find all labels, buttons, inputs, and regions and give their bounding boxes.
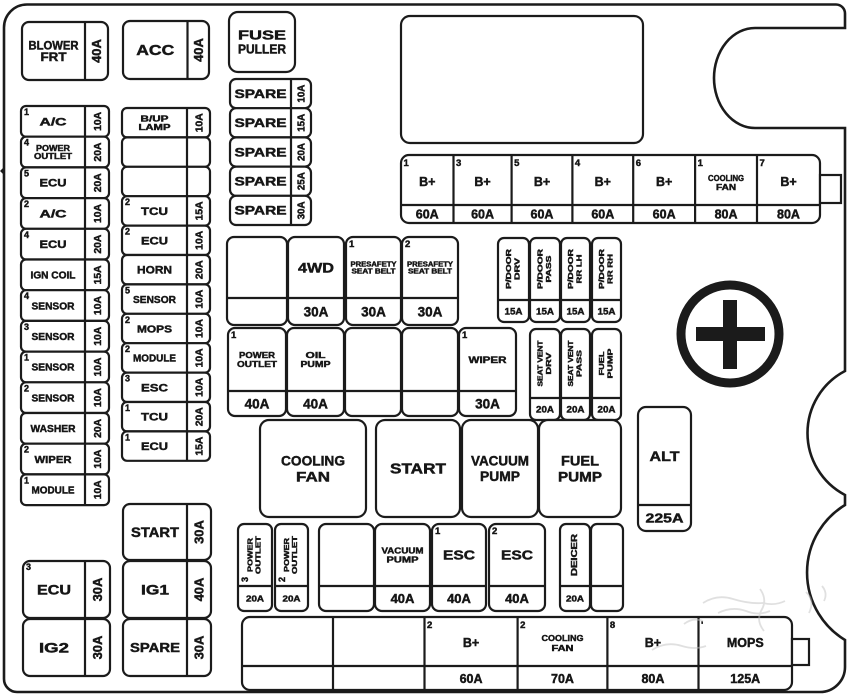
svg-text:OUTLET: OUTLET [237,359,278,369]
svg-text:PASS: PASS [544,256,553,283]
svg-text:15A: 15A [297,114,308,132]
svg-text:ACC: ACC [136,43,175,59]
svg-text:ECU: ECU [40,178,67,190]
svg-text:10A: 10A [193,113,205,132]
svg-text:10A: 10A [193,289,205,308]
svg-text:MOPS: MOPS [727,636,764,650]
svg-text:SENSOR: SENSOR [32,300,75,312]
svg-text:3: 3 [456,158,461,169]
svg-text:10A: 10A [297,85,308,103]
svg-text:SENSOR: SENSOR [32,392,75,404]
svg-text:3: 3 [125,374,130,384]
svg-text:PULLER: PULLER [238,43,286,57]
svg-text:60A: 60A [471,208,494,222]
svg-text:POWER: POWER [248,538,255,572]
svg-text:30A: 30A [475,396,500,411]
svg-text:10A: 10A [92,449,104,468]
svg-text:DRV: DRV [544,353,553,375]
svg-text:15A: 15A [505,306,523,317]
svg-text:1: 1 [24,475,29,485]
svg-text:5: 5 [514,158,520,169]
svg-text:DEICER: DEICER [570,534,579,576]
svg-text:START: START [390,462,446,478]
svg-text:20A: 20A [92,173,104,192]
svg-text:2: 2 [277,577,287,582]
svg-text:TCU: TCU [141,412,168,424]
svg-text:30A: 30A [192,519,207,543]
svg-text:4: 4 [24,291,29,301]
svg-text:20A: 20A [567,404,585,415]
svg-text:80A: 80A [715,208,738,222]
svg-text:DRV: DRV [512,258,521,280]
svg-text:30A: 30A [90,577,105,601]
svg-text:2: 2 [427,620,432,631]
svg-text:ESC: ESC [443,548,476,563]
svg-text:40A: 40A [505,591,529,606]
svg-text:1: 1 [231,330,237,341]
svg-text:FRT: FRT [41,52,67,64]
svg-text:': ' [701,620,703,631]
svg-text:B+: B+ [595,175,611,189]
svg-text:20A: 20A [92,234,104,253]
svg-text:3: 3 [26,562,31,572]
svg-text:RR LH: RR LH [574,255,583,284]
svg-text:SPARE: SPARE [235,116,287,130]
svg-text:2: 2 [24,199,29,209]
svg-text:60A: 60A [531,208,554,222]
svg-text:ECU: ECU [37,582,71,597]
svg-text:VACUUM: VACUUM [471,454,529,469]
svg-text:20A: 20A [246,594,264,604]
svg-text:ECU: ECU [141,441,168,453]
svg-text:A/C: A/C [40,116,67,128]
svg-text:4: 4 [575,158,581,169]
svg-text:B+: B+ [656,175,672,189]
svg-text:2: 2 [24,445,29,455]
svg-text:IGN COIL: IGN COIL [31,270,77,282]
svg-text:10A: 10A [193,377,205,396]
svg-text:ALT: ALT [650,449,681,464]
svg-text:2: 2 [492,526,497,537]
svg-text:30A: 30A [418,304,443,319]
svg-text:40A: 40A [192,577,207,601]
svg-text:1: 1 [435,526,441,537]
svg-text:15A: 15A [193,436,205,455]
svg-text:PUMP: PUMP [387,555,419,565]
svg-text:ESC: ESC [501,548,534,563]
svg-text:FUEL: FUEL [561,452,599,468]
svg-text:20A: 20A [193,407,205,426]
svg-text:15A: 15A [536,306,554,317]
svg-text:PUMP: PUMP [480,469,520,484]
svg-text:START: START [131,525,180,540]
svg-text:3: 3 [240,577,250,582]
svg-text:40A: 40A [245,396,270,411]
svg-text:SEAT BELT: SEAT BELT [408,269,453,276]
svg-text:80A: 80A [777,208,800,222]
svg-text:20A: 20A [92,418,104,437]
svg-text:SEAT BELT: SEAT BELT [352,269,397,276]
svg-text:60A: 60A [653,208,676,222]
svg-text:20A: 20A [536,404,554,415]
svg-text:3: 3 [24,322,29,332]
svg-text:PASS: PASS [574,350,583,377]
svg-text:20A: 20A [92,142,104,161]
svg-text:FAN: FAN [296,469,330,485]
svg-text:20A: 20A [566,594,584,604]
svg-text:25A: 25A [297,172,308,190]
svg-text:ESC: ESC [141,382,168,394]
svg-text:WIPER: WIPER [469,355,507,366]
svg-text:30A: 30A [297,201,308,219]
svg-text:5: 5 [125,285,130,295]
svg-text:PUMP: PUMP [605,349,614,379]
svg-text:WASHER: WASHER [31,423,76,435]
svg-text:OUTLET: OUTLET [255,535,262,574]
svg-text:OUTLET: OUTLET [292,535,299,574]
svg-text:PRESAFETY: PRESAFETY [407,261,453,268]
svg-text:40A: 40A [303,396,328,411]
svg-text:4WD: 4WD [298,260,334,276]
svg-text:COOLING: COOLING [542,633,584,643]
svg-text:2: 2 [125,197,130,207]
svg-text:1: 1 [125,403,130,413]
svg-text:1: 1 [404,158,410,169]
svg-text:SENSOR: SENSOR [133,294,176,306]
svg-text:IG2: IG2 [39,640,69,655]
svg-text:1: 1 [462,330,468,341]
svg-text:4: 4 [24,230,29,240]
svg-text:COOLING: COOLING [281,452,345,468]
svg-text:1: 1 [125,432,130,442]
svg-text:2: 2 [125,227,130,237]
svg-text:125A: 125A [730,672,760,686]
svg-text:10A: 10A [92,388,104,407]
svg-text:1: 1 [349,239,355,250]
svg-text:POWER: POWER [284,538,291,572]
svg-text:FAN: FAN [552,643,574,653]
svg-text:SPARE: SPARE [130,640,180,655]
svg-text:70A: 70A [551,672,574,686]
svg-text:10A: 10A [193,230,205,249]
svg-text:ECU: ECU [40,239,67,251]
svg-text:2: 2 [405,239,410,250]
svg-text:RR RH: RR RH [605,254,614,284]
svg-text:WIPER: WIPER [35,454,72,466]
svg-text:IG1: IG1 [141,582,170,597]
svg-text:B+: B+ [419,175,435,189]
svg-text:20A: 20A [193,260,205,279]
svg-text:4: 4 [24,138,29,148]
svg-text:B+: B+ [534,175,550,189]
svg-text:ECU: ECU [141,235,168,247]
svg-text:1: 1 [24,107,29,117]
svg-text:2: 2 [520,620,525,631]
svg-text:30A: 30A [90,635,105,659]
svg-text:60A: 60A [416,208,439,222]
svg-text:5: 5 [24,168,29,178]
svg-text:PRESAFETY: PRESAFETY [351,261,397,268]
svg-text:FAN: FAN [716,183,736,192]
svg-text:10A: 10A [92,111,104,130]
svg-text:10A: 10A [92,357,104,376]
svg-text:SENSOR: SENSOR [32,362,75,374]
svg-text:30A: 30A [304,304,329,319]
svg-text:6: 6 [636,158,641,169]
svg-text:10A: 10A [92,326,104,345]
svg-text:10A: 10A [92,204,104,223]
svg-text:MOPS: MOPS [137,323,172,335]
svg-text:225A: 225A [646,511,685,526]
svg-text:60A: 60A [460,672,483,686]
svg-text:COOLING: COOLING [708,174,744,183]
svg-text:A/C: A/C [40,208,67,220]
svg-text:MODULE: MODULE [32,485,75,497]
svg-text:FUSE: FUSE [238,28,286,42]
svg-text:LAMP: LAMP [139,122,171,132]
svg-text:SENSOR: SENSOR [32,331,75,343]
svg-text:15A: 15A [92,265,104,284]
svg-text:SPARE: SPARE [235,175,287,189]
svg-text:40A: 40A [89,38,104,62]
svg-text:1: 1 [24,353,29,363]
svg-text:B+: B+ [645,636,661,650]
svg-text:30A: 30A [192,635,207,659]
svg-text:2: 2 [125,344,130,354]
svg-text:60A: 60A [591,208,614,222]
svg-text:SPARE: SPARE [235,204,287,218]
svg-text:PUMP: PUMP [558,469,602,485]
svg-text:TCU: TCU [141,206,168,218]
svg-text:40A: 40A [447,591,471,606]
svg-text:SPARE: SPARE [235,87,287,101]
svg-text:10A: 10A [193,348,205,367]
svg-text:15A: 15A [193,201,205,220]
svg-text:SPARE: SPARE [235,145,287,159]
svg-text:8: 8 [610,620,615,631]
svg-text:10A: 10A [193,319,205,338]
svg-text:7: 7 [760,158,765,169]
svg-text:2: 2 [24,383,29,393]
svg-text:MODULE: MODULE [133,353,176,365]
svg-text:40A: 40A [391,591,415,606]
svg-text:40A: 40A [191,37,206,61]
svg-text:20A: 20A [283,594,301,604]
svg-text:20A: 20A [598,404,616,415]
svg-text:15A: 15A [598,306,616,317]
svg-text:PUMP: PUMP [301,359,331,369]
svg-text:BLOWER: BLOWER [29,40,80,52]
svg-text:80A: 80A [641,672,664,686]
svg-text:B+: B+ [474,175,490,189]
svg-text:B+: B+ [780,175,796,189]
svg-text:1: 1 [698,158,704,169]
svg-text:20A: 20A [297,143,308,161]
svg-text:B+: B+ [463,636,479,650]
svg-text:15A: 15A [567,306,585,317]
svg-text:10A: 10A [92,296,104,315]
svg-text:30A: 30A [361,304,386,319]
svg-text:10A: 10A [92,480,104,499]
svg-text:OUTLET: OUTLET [34,152,72,161]
svg-text:2: 2 [125,315,130,325]
svg-text:HORN: HORN [137,265,172,277]
